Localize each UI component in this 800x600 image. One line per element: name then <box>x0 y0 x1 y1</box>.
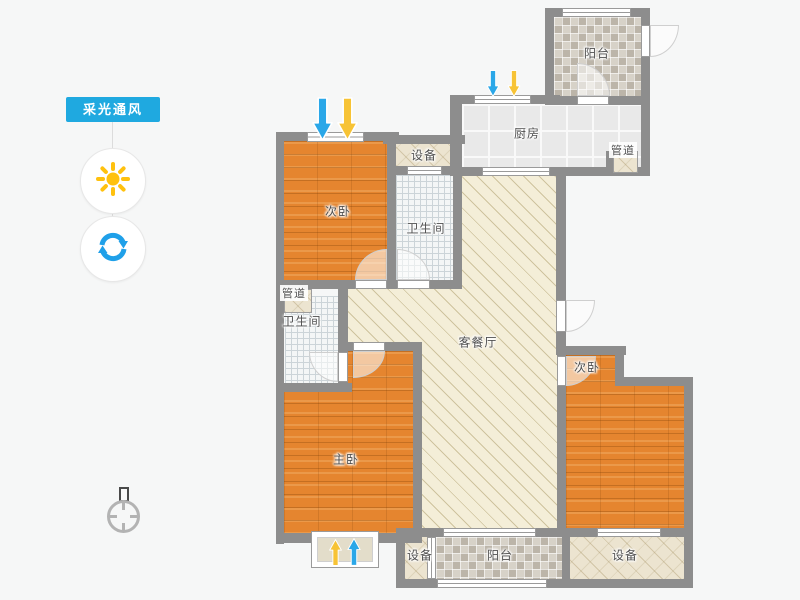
light-arrow-yellow-up-icon <box>327 539 344 571</box>
door-leaf <box>355 280 387 289</box>
wall <box>684 386 693 588</box>
compass-tick <box>122 523 125 530</box>
light-arrow-yellow-down-icon <box>337 96 358 147</box>
room-label-bathroom-top: 卫生间 <box>406 220 445 237</box>
sun-icon <box>94 160 132 203</box>
refresh-icon <box>97 231 129 268</box>
wall <box>387 132 396 289</box>
wind-arrow-blue-down-icon <box>484 70 502 102</box>
ventilation-refresh-button[interactable] <box>80 216 146 282</box>
wind-arrow-blue-up-icon <box>345 538 363 571</box>
room-label-balcony-top: 阳台 <box>584 45 610 62</box>
room-label-balcony-bottom: 阳台 <box>487 547 513 564</box>
wall <box>276 132 284 544</box>
floor-plan-app: 采光通风 <box>0 0 800 600</box>
wall <box>545 8 554 104</box>
light-arrow-yellow-down-icon <box>505 70 523 102</box>
room-label-equipment-bottom-left: 设备 <box>407 547 433 564</box>
room-label-bedroom-right: 次卧 <box>574 359 600 376</box>
door-leaf <box>397 280 430 289</box>
wind-arrow-blue-down-icon <box>312 96 333 147</box>
entry-door-leaf <box>556 300 566 332</box>
window <box>562 8 631 17</box>
door-leaf <box>338 352 348 382</box>
room-label-bathroom-left: 卫生间 <box>282 313 321 330</box>
wall <box>413 342 422 537</box>
room-label-equipment-bottom-right: 设备 <box>612 547 638 564</box>
room-label-equipment-top: 设备 <box>411 147 437 164</box>
wall <box>556 346 626 355</box>
wall <box>276 533 314 543</box>
room-label-duct-left: 管道 <box>280 285 308 301</box>
window <box>482 167 550 176</box>
compass-tick <box>130 515 137 518</box>
compass-tick <box>122 503 125 510</box>
entry-door-swing-arc <box>566 300 595 332</box>
room-label-master-bedroom: 主卧 <box>333 451 359 468</box>
door-leaf <box>557 356 566 386</box>
window <box>597 528 661 537</box>
room-label-living-dining: 客餐厅 <box>458 334 497 351</box>
door-leaf <box>641 25 650 57</box>
wall <box>276 383 352 392</box>
door-leaf <box>577 96 609 105</box>
room-label-kitchen: 厨房 <box>514 125 540 142</box>
door-swing-arc <box>650 25 679 57</box>
wall <box>615 377 693 386</box>
daylight-button[interactable] <box>80 148 146 214</box>
wall <box>453 135 462 289</box>
room-label-bedroom-top-left: 次卧 <box>325 203 351 220</box>
door-leaf <box>353 342 385 351</box>
window <box>437 579 547 588</box>
compass-tick <box>110 515 117 518</box>
wall <box>562 537 570 588</box>
window <box>407 166 442 175</box>
room-label-duct-kitchen: 管道 <box>609 142 637 158</box>
lighting-ventilation-tag[interactable]: 采光通风 <box>66 97 160 122</box>
window <box>443 528 536 537</box>
wall <box>377 533 422 543</box>
